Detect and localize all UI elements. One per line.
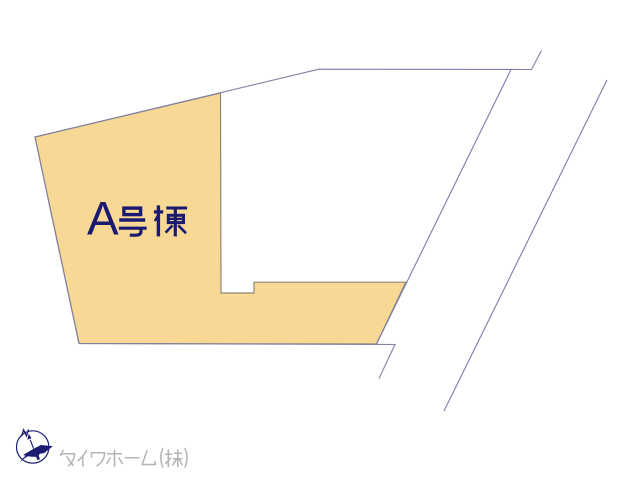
svg-text:A: A (87, 192, 119, 245)
